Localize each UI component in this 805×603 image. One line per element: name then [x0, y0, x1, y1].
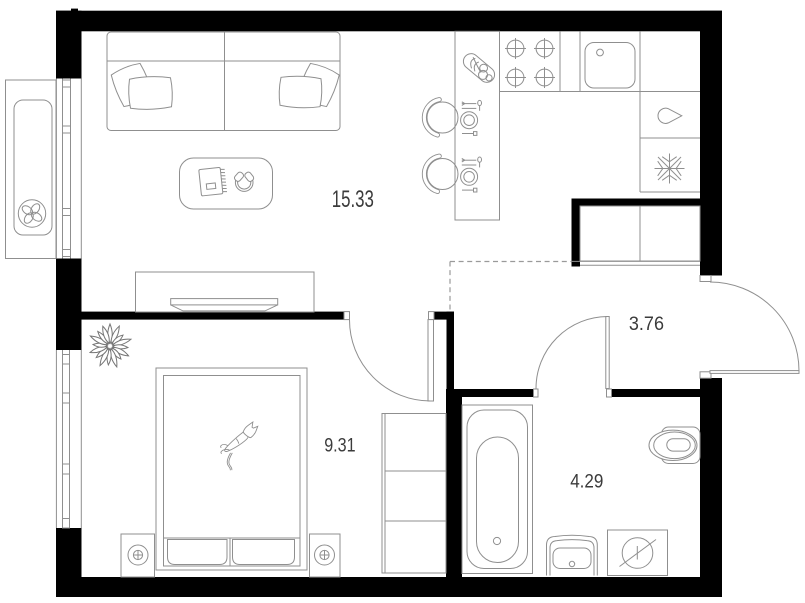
- svg-text:15.33: 15.33: [332, 186, 374, 213]
- svg-text:4.29: 4.29: [570, 471, 603, 493]
- svg-text:9.31: 9.31: [324, 435, 355, 457]
- svg-text:3.76: 3.76: [629, 313, 664, 335]
